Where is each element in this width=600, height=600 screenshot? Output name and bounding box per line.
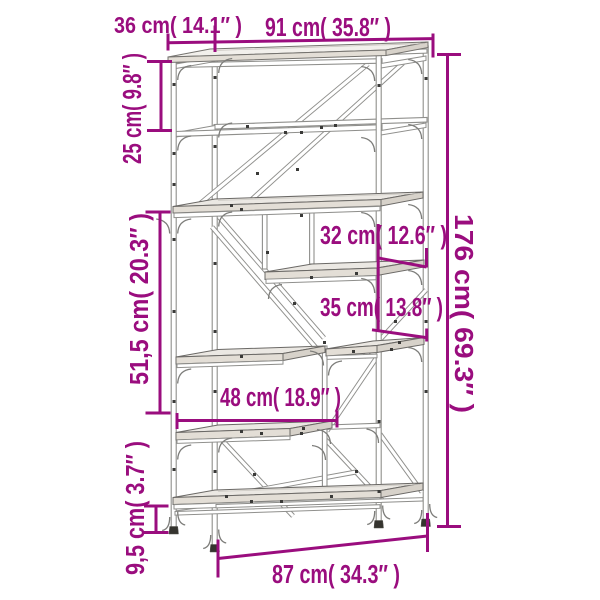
svg-text:25 cm( 9.8″ ): 25 cm( 9.8″ ) xyxy=(119,53,147,164)
svg-text:87 cm( 34.3″ ): 87 cm( 34.3″ ) xyxy=(272,561,400,589)
svg-text:48 cm( 18.9″ ): 48 cm( 18.9″ ) xyxy=(220,384,341,412)
svg-text:176 cm( 69.3″ ): 176 cm( 69.3″ ) xyxy=(449,214,477,413)
svg-text:32 cm( 12.6″ ): 32 cm( 12.6″ ) xyxy=(320,222,447,250)
svg-text:91 cm( 35.8″ ): 91 cm( 35.8″ ) xyxy=(265,14,391,42)
svg-text:9,5 cm( 3.7″ ): 9,5 cm( 3.7″ ) xyxy=(122,441,150,575)
svg-text:36 cm( 14.1″ ): 36 cm( 14.1″ ) xyxy=(114,12,242,38)
svg-text:35 cm( 13.8″ ): 35 cm( 13.8″ ) xyxy=(320,294,443,322)
svg-text:51,5 cm( 20.3″ ): 51,5 cm( 20.3″ ) xyxy=(126,213,154,385)
